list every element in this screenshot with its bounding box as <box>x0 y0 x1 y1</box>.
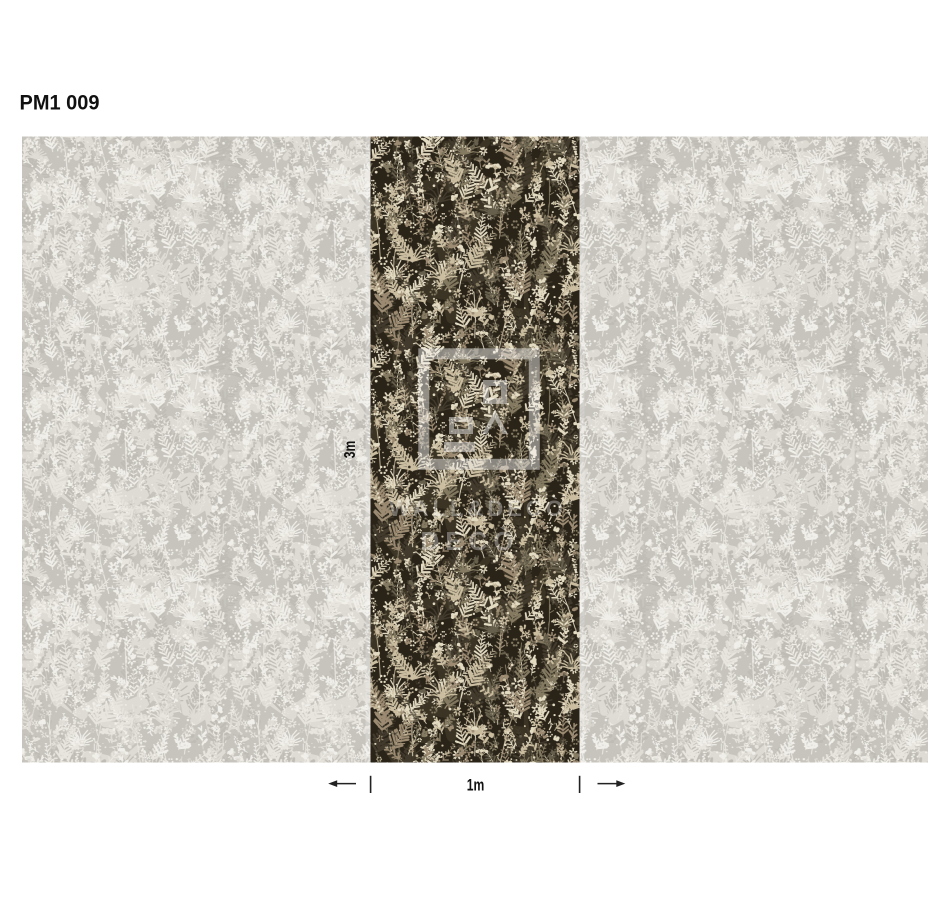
svg-text:WALL&DECÒ: WALL&DECÒ <box>389 496 567 521</box>
svg-text:3m: 3m <box>342 441 359 459</box>
svg-text:DECÒ: DECÒ <box>420 526 519 556</box>
svg-text:PM1 009: PM1 009 <box>20 91 100 115</box>
svg-text:1m: 1m <box>467 777 485 795</box>
